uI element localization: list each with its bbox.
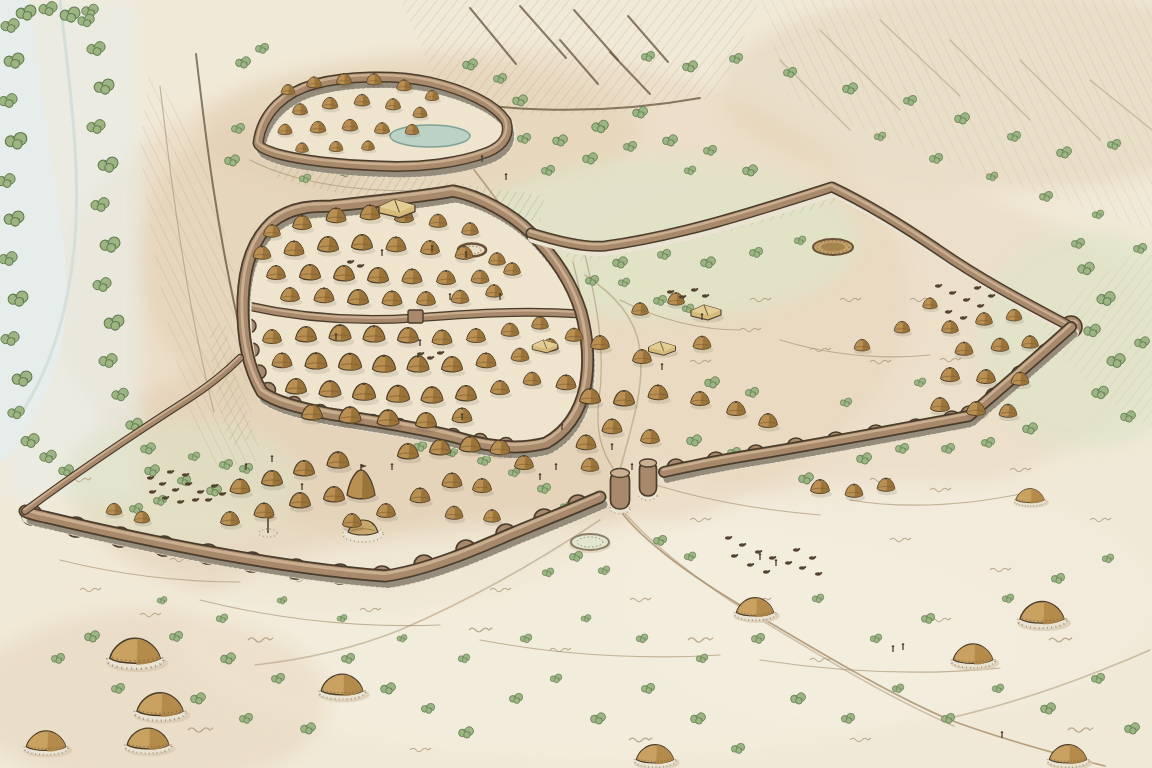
mud-pit — [813, 239, 853, 255]
settlement-illustration — [0, 0, 1152, 768]
acropolis-pond — [390, 125, 470, 147]
gate-tower-icon — [610, 469, 630, 514]
divider-gate — [408, 310, 423, 323]
gate-tower-icon — [639, 459, 657, 500]
illustration-stage — [0, 0, 1152, 768]
sunken-ring — [569, 534, 611, 553]
